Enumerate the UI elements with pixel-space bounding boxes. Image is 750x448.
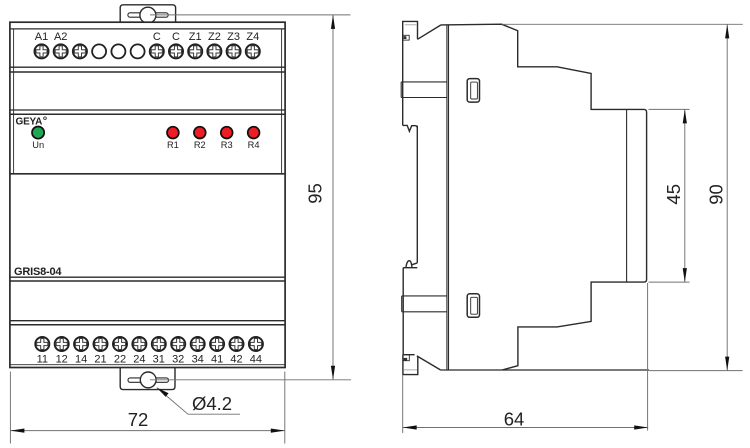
- svg-text:Un: Un: [32, 140, 44, 150]
- svg-text:C: C: [172, 31, 180, 43]
- svg-text:A1: A1: [35, 31, 48, 43]
- svg-text:22: 22: [114, 354, 126, 366]
- svg-text:31: 31: [153, 354, 165, 366]
- svg-text:11: 11: [37, 354, 48, 366]
- svg-text:12: 12: [56, 354, 68, 366]
- svg-text:44: 44: [250, 354, 262, 366]
- svg-text:34: 34: [192, 354, 204, 366]
- svg-text:42: 42: [230, 354, 242, 366]
- svg-text:Z3: Z3: [227, 31, 240, 43]
- svg-text:R3: R3: [221, 140, 233, 150]
- svg-text:32: 32: [172, 354, 184, 366]
- svg-text:GRIS8-04: GRIS8-04: [14, 266, 62, 278]
- svg-text:95: 95: [305, 183, 326, 204]
- svg-text:A2: A2: [54, 31, 67, 43]
- svg-text:GEYA: GEYA: [16, 116, 43, 127]
- svg-text:R2: R2: [194, 140, 206, 150]
- svg-text:21: 21: [94, 354, 106, 366]
- svg-text:45: 45: [663, 184, 684, 205]
- svg-text:C: C: [153, 31, 161, 43]
- svg-text:14: 14: [75, 354, 87, 366]
- svg-text:R4: R4: [248, 140, 260, 150]
- svg-text:R1: R1: [167, 140, 179, 150]
- svg-text:24: 24: [133, 354, 145, 366]
- svg-text:Z2: Z2: [208, 31, 221, 43]
- svg-text:Z4: Z4: [246, 31, 259, 43]
- svg-text:64: 64: [504, 409, 525, 430]
- svg-text:Z1: Z1: [189, 31, 202, 43]
- svg-text:72: 72: [128, 409, 149, 430]
- svg-text:Ø4.2: Ø4.2: [192, 393, 232, 414]
- svg-text:90: 90: [706, 184, 727, 205]
- svg-text:41: 41: [211, 354, 223, 366]
- svg-text:o: o: [43, 115, 47, 122]
